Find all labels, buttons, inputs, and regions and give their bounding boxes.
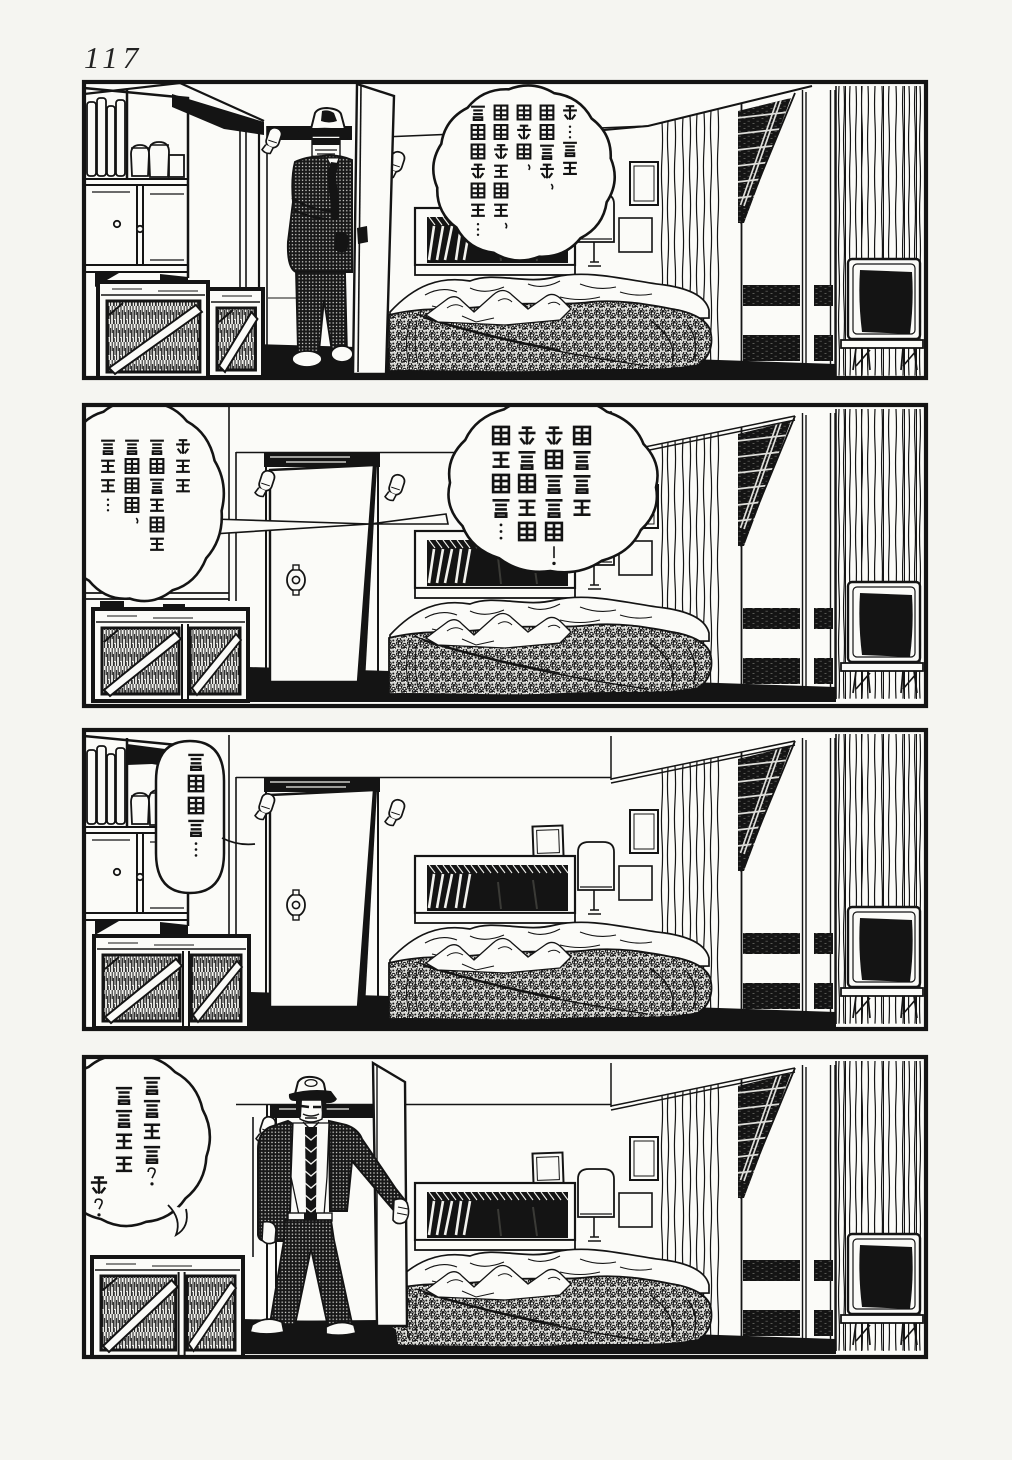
svg-text:117: 117	[84, 40, 143, 75]
